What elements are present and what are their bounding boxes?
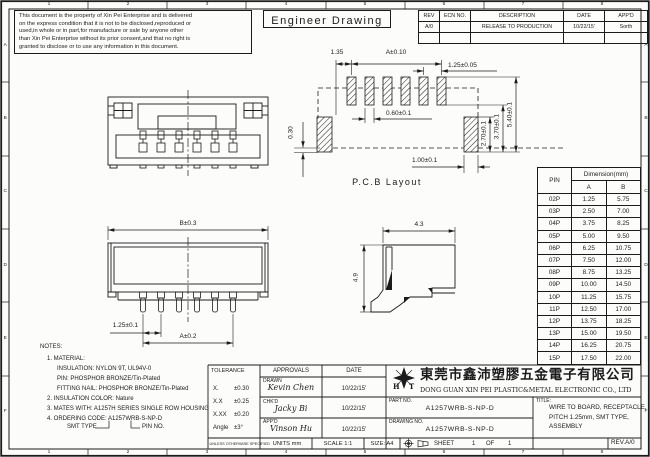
revision-table: REV ECN NO. DESCRIPTION DATE APP'D A/0 R… — [418, 10, 648, 44]
dim-label: 4.9 — [352, 266, 359, 290]
note-line: FITTING NAIL: PHOSPHOR BRONZE/Tin-Plated — [57, 386, 188, 393]
table-row: 10P11.2515.75 — [538, 291, 641, 303]
frame-col-label: 8 — [597, 2, 607, 7]
dim-label: 1.25±0.1 — [96, 322, 138, 329]
revision-header-row: REV ECN NO. DESCRIPTION DATE APP'D — [419, 11, 648, 22]
pin-col-header: PIN — [538, 168, 572, 194]
notes-heading: NOTES: — [40, 344, 62, 351]
note-line: 3. MATES WITH: A1257H SERIES SINGLE ROW … — [47, 406, 209, 413]
a-cell: 5.00 — [572, 230, 607, 242]
note-line: 4. ORDERING CODE: A1257WRB-S-NP-D — [47, 416, 162, 423]
table-row: 08P8.7513.25 — [538, 267, 641, 279]
pin-cell: 08P — [538, 267, 572, 279]
empty-cell — [419, 33, 440, 44]
col-a-header: A — [572, 181, 607, 194]
date-value: 10/22/15' — [564, 22, 605, 33]
table-row: 12P13.7518.25 — [538, 315, 641, 327]
tolerance-label: X.X — [213, 399, 223, 406]
empty-cell — [564, 33, 605, 44]
b-cell: 9.50 — [606, 230, 641, 242]
note-line: INSULATION: NYLON 9T, UL94V-0 — [57, 366, 151, 373]
frame-row-label: B — [2, 116, 8, 121]
table-row: 09P10.0014.50 — [538, 279, 641, 291]
frame-row-label: A — [2, 43, 8, 48]
table-row: 15P17.5022.00 — [538, 352, 641, 364]
drawing-sheet: 1 2 3 4 5 6 7 8 1 2 3 4 5 6 7 8 A B C D … — [0, 0, 650, 457]
sheet-of-label: OF — [486, 441, 494, 448]
approv-signature: Kevin Chen — [262, 384, 320, 393]
dim-label: 1.00±0.1 — [412, 157, 437, 164]
b-cell: 7.00 — [606, 206, 641, 218]
b-cell: 18.25 — [606, 315, 641, 327]
empty-cell — [605, 33, 648, 44]
ecn-value — [440, 22, 471, 33]
tolerance-label: X. — [213, 386, 219, 393]
company-name-cn: 東莞市鑫沛塑膠五金電子有限公司 — [420, 368, 635, 383]
size-label: SIZE: A4 — [365, 441, 399, 447]
b-cell: 15.75 — [606, 291, 641, 303]
date-col-header: DATE — [564, 11, 605, 22]
tolerance-value: ±0.20 — [234, 412, 249, 419]
frame-col-label: 6 — [439, 450, 449, 455]
dim-label: 4.3 — [405, 221, 433, 228]
sheet-number: 1 — [472, 441, 475, 448]
tolerance-label: X.XX — [213, 412, 227, 419]
description-value: RELEASE TO PRODUCTION — [471, 22, 564, 33]
a-cell: 7.50 — [572, 254, 607, 266]
a-cell: 3.75 — [572, 218, 607, 230]
pin-cell: 02P — [538, 194, 572, 206]
pin-cell: 04P — [538, 218, 572, 230]
tolerance-value: ±0.25 — [234, 399, 249, 406]
frame-col-label: 4 — [281, 450, 291, 455]
a-cell: 12.50 — [572, 303, 607, 315]
a-cell: 1.25 — [572, 194, 607, 206]
pin-no-callout: PIN NO. — [142, 424, 164, 431]
description-col-header: DESCRIPTION — [471, 11, 564, 22]
approv-date: 10/22/15' — [324, 386, 384, 393]
frame-row-label: C — [2, 189, 8, 194]
scale-label: SCALE 1:1 — [314, 441, 362, 447]
rev-col-header: REV — [419, 11, 440, 22]
company-name-en: DONG GUAN XIN PEI PLASTIC&METAL ELECTRON… — [420, 387, 632, 394]
table-row: 05P5.009.50 — [538, 230, 641, 242]
frame-col-label: 5 — [360, 450, 370, 455]
logo-letter-left: H — [393, 383, 400, 391]
tolerance-value: ±0.30 — [234, 386, 249, 393]
drawing-no-label: DRAWING NO. — [389, 420, 423, 426]
pin-cell: 09P — [538, 279, 572, 291]
dim-label: 1.35 — [324, 49, 350, 56]
ecn-col-header: ECN NO. — [440, 11, 471, 22]
note-line: PIN: PHOSPHOR BRONZE/Tin-Plated — [57, 376, 160, 383]
disclaimer-line: This document is the property of Xin Pei… — [19, 13, 247, 21]
frame-col-label: 2 — [123, 450, 133, 455]
table-row: 06P6.2510.75 — [538, 242, 641, 254]
b-cell: 19.50 — [606, 328, 641, 340]
smt-type-callout: SMT TYPE — [67, 424, 97, 431]
title-line: PITCH 1.25mm, SMT TYPE, — [549, 415, 629, 422]
part-no-value: A1257WRB-S-NP-D — [388, 405, 532, 412]
a-cell: 15.00 — [572, 328, 607, 340]
a-cell: 16.25 — [572, 340, 607, 352]
dim-label: A±0.10 — [372, 49, 420, 56]
approv-signature: Vinson Hu — [262, 425, 320, 434]
dim-label: 5.40±0.1 — [506, 95, 513, 135]
dim-label: 1.25±0.05 — [448, 62, 477, 69]
table-row: 13P15.0019.50 — [538, 328, 641, 340]
frame-col-label: 7 — [518, 2, 528, 7]
disclaimer-line: granted to disclose or to use any inform… — [19, 44, 247, 52]
pin-cell: 10P — [538, 291, 572, 303]
b-cell: 10.75 — [606, 242, 641, 254]
disclaimer-box: This document is the property of Xin Pei… — [14, 10, 252, 54]
a-cell: 10.00 — [572, 279, 607, 291]
frame-col-label: 6 — [439, 2, 449, 7]
sheet-label: SHEET — [434, 441, 454, 448]
empty-cell — [471, 33, 564, 44]
approv-signature: Jacky Bi — [262, 405, 320, 414]
frame-col-label: 2 — [123, 2, 133, 7]
b-cell: 8.25 — [606, 218, 641, 230]
front-view — [108, 90, 268, 176]
approv-heading: APPROVALS — [261, 368, 321, 375]
dim-label: 2.70±0.1 — [480, 114, 487, 154]
frame-col-label: 1 — [44, 2, 54, 7]
frame-row-label: D — [643, 263, 649, 268]
a-cell: 8.75 — [572, 267, 607, 279]
dim-label: B±0.3 — [166, 220, 210, 227]
rev-badge: REV.A/0 — [611, 440, 635, 447]
page-title: Engineer Drawing — [271, 15, 382, 27]
dim-label: 3.70±0.1 — [493, 107, 500, 147]
b-cell: 13.25 — [606, 267, 641, 279]
dim-label: 0.30 — [287, 118, 294, 148]
disclaimer-line: on the express condition that it is not … — [19, 21, 247, 29]
revision-row: A/0 RELEASE TO PRODUCTION 10/22/15' Sort… — [419, 22, 648, 33]
frame-row-label: C — [643, 189, 649, 194]
frame-row-label: E — [2, 336, 8, 341]
dimension-col-header: Dimension(mm) — [572, 168, 641, 181]
pin-cell: 03P — [538, 206, 572, 218]
date-heading: DATE — [323, 368, 385, 375]
pin-cell: 12P — [538, 315, 572, 327]
projection-symbol — [404, 439, 429, 448]
pcb-layout-caption: P.C.B Layout — [342, 178, 432, 188]
title-line: ASSEMBLY — [549, 424, 582, 431]
frame-row-label: B — [643, 116, 649, 121]
b-cell: 17.00 — [606, 303, 641, 315]
frame-col-label: 7 — [518, 450, 528, 455]
table-row: 14P16.2520.75 — [538, 340, 641, 352]
frame-row-label: E — [643, 336, 649, 341]
pin-cell: 05P — [538, 230, 572, 242]
pin-cell: 06P — [538, 242, 572, 254]
frame-row-label: D — [2, 263, 8, 268]
pin-dimension-table: PIN Dimension(mm) A B 02P1.255.75 03P2.5… — [537, 167, 641, 365]
b-cell: 22.00 — [606, 352, 641, 364]
approv-date: 10/22/15' — [324, 406, 384, 413]
frame-col-label: 3 — [202, 450, 212, 455]
pin-cell: 11P — [538, 303, 572, 315]
tolerance-value: ±3° — [234, 425, 243, 432]
table-row: 02P1.255.75 — [538, 194, 641, 206]
frame-col-label: 8 — [597, 450, 607, 455]
rev-value: A/0 — [419, 22, 440, 33]
frame-row-label: F — [2, 409, 8, 414]
pin-cell: 13P — [538, 328, 572, 340]
frame-col-label: 5 — [360, 2, 370, 7]
note-line: 2. INSULATION COLOR: Nature — [47, 396, 134, 403]
appd-value: Sorth — [605, 22, 648, 33]
table-row: 03P2.507.00 — [538, 206, 641, 218]
frame-col-label: 4 — [281, 2, 291, 7]
disclaimer-line: used,in whole or in part,for manufacture… — [19, 28, 247, 36]
tolerance-footnote: UNLESS OTHERWISE SPECIFIED — [210, 442, 270, 446]
appd-col-header: APP'D — [605, 11, 648, 22]
side-view — [360, 227, 455, 312]
col-b-header: B — [606, 181, 641, 194]
logo-letter-right: T — [409, 383, 414, 391]
a-cell: 17.50 — [572, 352, 607, 364]
a-cell: 11.25 — [572, 291, 607, 303]
dim-label: 0.60±0.1 — [386, 110, 411, 117]
pin-table-header: PIN Dimension(mm) — [538, 168, 641, 181]
disclaimer-line: than Xin Pei Enterprise without its prio… — [19, 36, 247, 44]
b-cell: 12.00 — [606, 254, 641, 266]
b-cell: 5.75 — [606, 194, 641, 206]
table-row: 11P12.5017.00 — [538, 303, 641, 315]
drawing-no-value: A1257WRB-S-NP-D — [388, 426, 532, 433]
a-cell: 6.25 — [572, 242, 607, 254]
part-no-label: PART NO. — [389, 399, 412, 405]
dim-label: A±0.2 — [166, 333, 210, 340]
pin-cell: 14P — [538, 340, 572, 352]
title-line: WIRE TO BOARD, RECEPTACLE, — [549, 405, 647, 412]
b-cell: 20.75 — [606, 340, 641, 352]
sheet-title-box: Engineer Drawing — [263, 10, 391, 28]
sheet-total: 1 — [508, 441, 511, 448]
pin-cell: 07P — [538, 254, 572, 266]
a-cell: 13.75 — [572, 315, 607, 327]
revision-empty-row — [419, 33, 648, 44]
table-row: 07P7.5012.00 — [538, 254, 641, 266]
units-label: UNITS mm — [264, 441, 310, 447]
table-row: 04P3.758.25 — [538, 218, 641, 230]
a-cell: 2.50 — [572, 206, 607, 218]
b-cell: 14.50 — [606, 279, 641, 291]
frame-col-label: 1 — [44, 450, 54, 455]
frame-col-label: 3 — [202, 2, 212, 7]
pin-cell: 15P — [538, 352, 572, 364]
tolerance-heading: TOLERANCE — [211, 368, 245, 374]
tolerance-label: Angle — [213, 425, 228, 432]
empty-cell — [440, 33, 471, 44]
note-line: 1. MATERIAL: — [47, 356, 85, 363]
approv-date: 10/22/15' — [324, 427, 384, 434]
